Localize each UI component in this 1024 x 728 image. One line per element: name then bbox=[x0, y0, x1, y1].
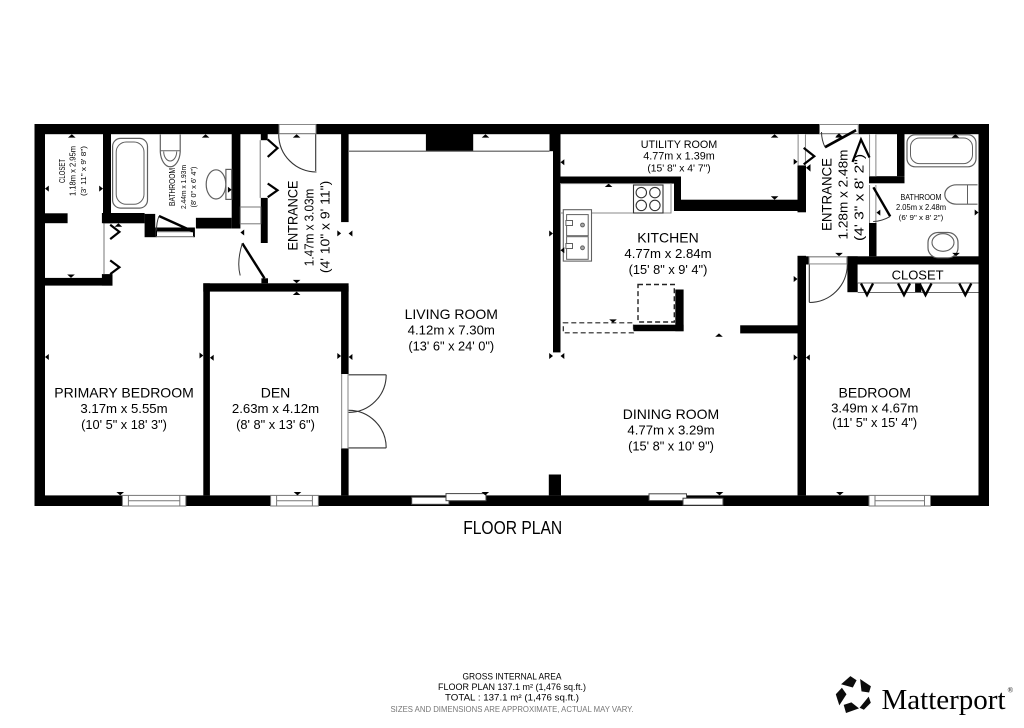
svg-text:TOTAL : 137.1 m² (1,476 sq.ft: TOTAL : 137.1 m² (1,476 sq.ft.) bbox=[445, 693, 579, 703]
svg-text:(11' 5" x 15' 4"): (11' 5" x 15' 4") bbox=[832, 415, 917, 430]
svg-text:4.77m x 2.84m: 4.77m x 2.84m bbox=[624, 246, 711, 261]
svg-text:BATHROOM: BATHROOM bbox=[168, 168, 177, 206]
svg-text:(3' 11" x 9' 8"): (3' 11" x 9' 8") bbox=[79, 145, 88, 196]
svg-text:1.28m x 2.48m: 1.28m x 2.48m bbox=[836, 150, 851, 240]
svg-text:®: ® bbox=[1008, 686, 1014, 695]
svg-text:(8' 8" x 13' 6"): (8' 8" x 13' 6") bbox=[236, 417, 315, 432]
svg-text:3.17m x 5.55m: 3.17m x 5.55m bbox=[80, 401, 167, 416]
svg-text:3.49m x 4.67m: 3.49m x 4.67m bbox=[831, 400, 918, 415]
svg-text:FLOOR PLAN 137.1 m² (1,476 sq.: FLOOR PLAN 137.1 m² (1,476 sq.ft.) bbox=[438, 682, 586, 692]
svg-text:Matterport: Matterport bbox=[882, 684, 1006, 716]
svg-text:4.77m x 1.39m: 4.77m x 1.39m bbox=[643, 151, 714, 163]
svg-text:PRIMARY BEDROOM: PRIMARY BEDROOM bbox=[54, 385, 194, 401]
svg-text:(15' 8" x 4' 7"): (15' 8" x 4' 7") bbox=[647, 163, 710, 174]
svg-text:4.12m x 7.30m: 4.12m x 7.30m bbox=[408, 323, 495, 338]
svg-text:2.44m x 1.93m: 2.44m x 1.93m bbox=[179, 165, 188, 209]
svg-text:2.05m x 2.48m: 2.05m x 2.48m bbox=[896, 203, 946, 212]
svg-text:1.18m x 2.95m: 1.18m x 2.95m bbox=[69, 146, 78, 196]
svg-text:DINING ROOM: DINING ROOM bbox=[623, 406, 719, 422]
svg-text:LIVING ROOM: LIVING ROOM bbox=[405, 306, 498, 322]
svg-text:2.63m x 4.12m: 2.63m x 4.12m bbox=[232, 401, 319, 416]
svg-text:(13' 6" x 24' 0"): (13' 6" x 24' 0") bbox=[408, 338, 494, 353]
svg-text:SIZES AND DIMENSIONS ARE APPRO: SIZES AND DIMENSIONS ARE APPROXIMATE, AC… bbox=[391, 705, 634, 714]
svg-text:BEDROOM: BEDROOM bbox=[839, 385, 911, 401]
svg-text:UTILITY ROOM: UTILITY ROOM bbox=[641, 139, 718, 151]
svg-text:ENTRANCE: ENTRANCE bbox=[286, 181, 301, 251]
svg-text:CLOSET: CLOSET bbox=[892, 268, 944, 283]
svg-text:BATHROOM: BATHROOM bbox=[901, 193, 942, 202]
svg-text:FLOOR PLAN: FLOOR PLAN bbox=[463, 517, 562, 538]
svg-text:(4' 10" x 9' 11"): (4' 10" x 9' 11") bbox=[318, 181, 332, 273]
svg-text:(8' 0" x 6' 4"): (8' 0" x 6' 4") bbox=[191, 167, 198, 208]
svg-text:4.77m x 3.29m: 4.77m x 3.29m bbox=[627, 423, 714, 438]
svg-text:CLOSET: CLOSET bbox=[57, 159, 67, 183]
svg-text:(15' 8" x 10' 9"): (15' 8" x 10' 9") bbox=[628, 438, 714, 453]
svg-text:KITCHEN: KITCHEN bbox=[637, 230, 698, 246]
svg-text:DEN: DEN bbox=[261, 385, 291, 401]
svg-text:(4' 3" x 8' 2"): (4' 3" x 8' 2") bbox=[852, 154, 866, 241]
svg-text:1.47m x 3.03m: 1.47m x 3.03m bbox=[301, 189, 316, 266]
svg-text:GROSS INTERNAL AREA: GROSS INTERNAL AREA bbox=[463, 672, 562, 682]
svg-text:(10' 5" x 18' 3"): (10' 5" x 18' 3") bbox=[81, 417, 167, 432]
svg-text:ENTRANCE: ENTRANCE bbox=[820, 158, 835, 231]
svg-text:(15' 8" x 9' 4"): (15' 8" x 9' 4") bbox=[629, 262, 708, 277]
svg-text:(6' 9" x 8' 2"): (6' 9" x 8' 2") bbox=[899, 213, 944, 222]
